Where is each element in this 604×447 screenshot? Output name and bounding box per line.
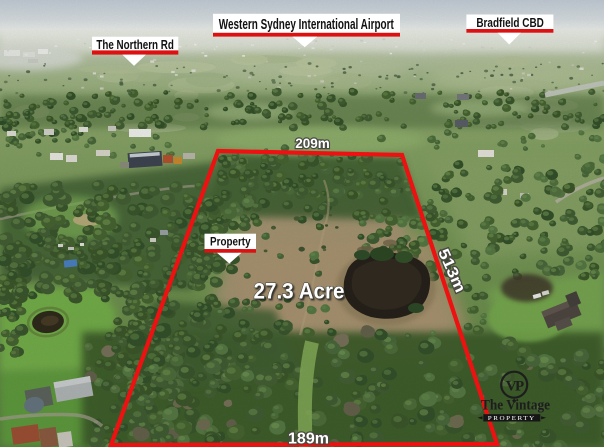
svg-text:The Vintage: The Vintage bbox=[481, 398, 551, 414]
svg-text:Bradfield CBD: Bradfield CBD bbox=[476, 15, 544, 30]
svg-text:Property: Property bbox=[210, 237, 251, 249]
svg-text:27.3 Acre: 27.3 Acre bbox=[254, 279, 345, 304]
svg-text:Western Sydney International A: Western Sydney International Airport bbox=[219, 16, 394, 33]
svg-text:PROPERTY: PROPERTY bbox=[488, 415, 536, 422]
svg-text:209m: 209m bbox=[295, 136, 330, 152]
svg-text:189m: 189m bbox=[288, 431, 329, 447]
svg-text:VP: VP bbox=[506, 378, 524, 394]
svg-text:The Northern Rd: The Northern Rd bbox=[96, 37, 174, 52]
